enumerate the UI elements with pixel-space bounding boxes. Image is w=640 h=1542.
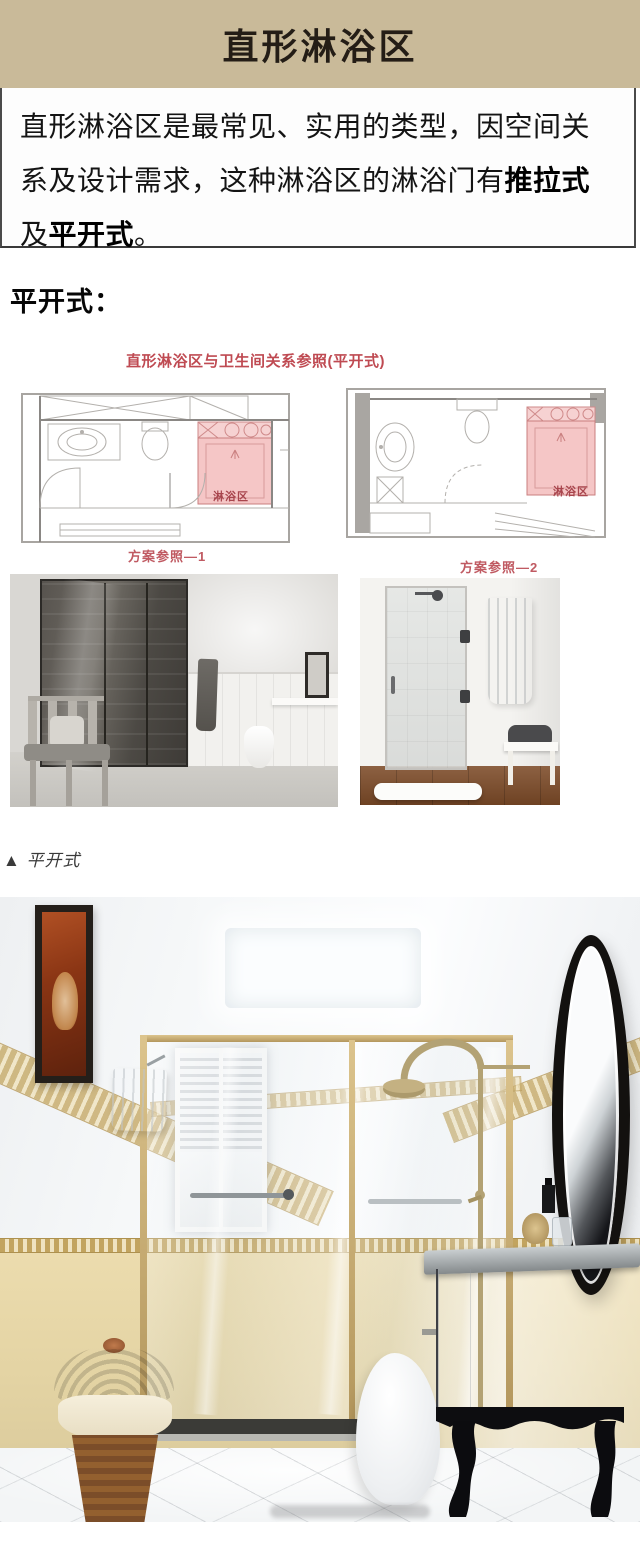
intro-bold-swing: 平开式 [49, 219, 135, 250]
bath-mat [374, 783, 482, 800]
chair-seat [24, 744, 110, 761]
floor-plans-figure: 直形淋浴区与卫生间关系参照(平开式) [0, 348, 640, 578]
intro-bold-sliding: 推拉式 [505, 165, 591, 196]
plan-2-caption: 方案参照—2 [460, 557, 538, 576]
floor-plan-2 [345, 385, 610, 540]
photo-swing-door-left [10, 574, 338, 807]
photo-swing-door-right [360, 578, 560, 805]
stool-leg [550, 751, 555, 785]
floor-plans-title: 直形淋浴区与卫生间关系参照(平开式) [126, 350, 385, 371]
wall-towel [111, 1068, 167, 1132]
perfume-bottle [542, 1185, 555, 1213]
hanging-towel [488, 598, 532, 704]
article-page: { "colors": { "header_bg": "#c9ba99", "a… [0, 0, 640, 1542]
cosmetic-jar [522, 1213, 549, 1244]
plan-1-caption: 方案参照—1 [128, 546, 206, 565]
basket-cloth [58, 1395, 172, 1441]
hanging-towel [196, 659, 219, 732]
painting-figure [52, 972, 78, 1030]
towel-bar [368, 1199, 462, 1204]
stool [504, 742, 558, 751]
shower-glass-panel [147, 1042, 349, 1419]
door-hinge [460, 630, 470, 643]
wall-art-frame [305, 652, 329, 698]
vanity-legs [420, 1407, 640, 1522]
vanity-cabinet [436, 1269, 640, 1419]
intro-part2: 及 [20, 219, 49, 250]
page-title: 直形淋浴区 [222, 18, 417, 70]
shower-area-label-2: 淋浴区 [553, 483, 589, 499]
cosmetic-bottle [552, 1217, 572, 1246]
stool-leg [508, 751, 513, 785]
floor-plan-1 [20, 390, 295, 545]
ceiling-light-panel [225, 928, 421, 1008]
intro-paragraph: 直形淋浴区是最常见、实用的类型，因空间关系及设计需求，这种淋浴区的淋浴门有推拉式… [20, 100, 616, 262]
door-handle [391, 676, 395, 694]
shower-head [432, 590, 443, 601]
shower-area-label-1: 淋浴区 [213, 488, 249, 504]
watermark-smudge [270, 1505, 430, 1518]
chair-leg [102, 760, 108, 806]
wall-shelf [272, 698, 338, 705]
grab-bar [190, 1193, 286, 1198]
framed-painting [35, 905, 93, 1083]
intro-box: 直形淋浴区是最常见、实用的类型，因空间关系及设计需求，这种淋浴区的淋浴门有推拉式… [0, 88, 636, 248]
bathroom-render-photo [0, 897, 640, 1522]
hinged-glass-door [385, 586, 467, 770]
shower-tiles [387, 588, 465, 768]
door-hinge [460, 690, 470, 703]
swing-type-heading: 平开式： [10, 280, 122, 319]
intro-part3: 。 [134, 219, 163, 250]
chair-leg [66, 760, 72, 806]
photos-caption: ▲ 平开式 [3, 846, 81, 871]
chair-leg [30, 760, 36, 806]
glass-stile [146, 583, 148, 765]
header-band: 直形淋浴区 [0, 0, 640, 88]
grab-bar-knob [283, 1189, 294, 1200]
